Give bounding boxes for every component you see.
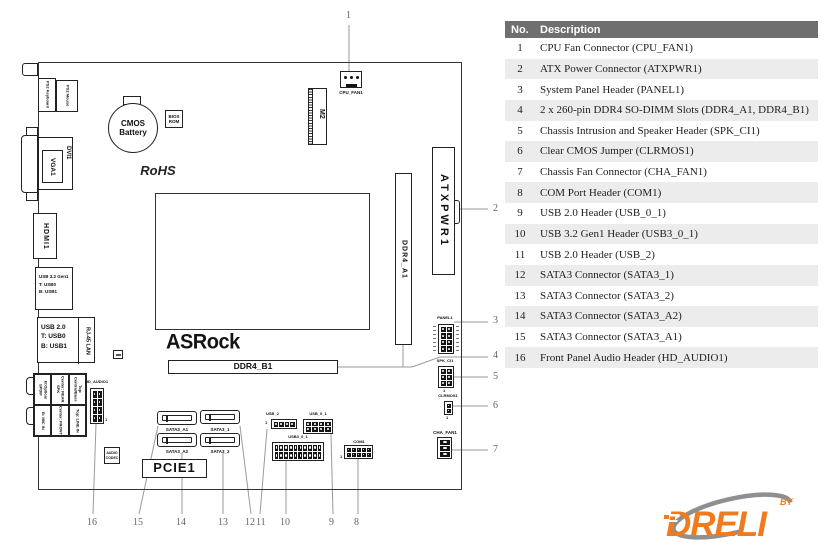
sata3-1-connector — [200, 410, 240, 424]
legend-row: 15SATA3 Connector (SATA3_A1) — [505, 327, 818, 348]
usb20-rj45-block: USB 2.0 T: USB0 B: USB1 RJ-45 LAN — [37, 317, 95, 363]
usb32-label: USB 3.2 Gen1 — [39, 274, 72, 279]
panel1-side-marks — [433, 326, 436, 352]
dreli-wordmark: DRELI — [666, 505, 768, 544]
usb-2-header — [271, 419, 297, 429]
row-desc: Clear CMOS Jumper (CLRMOS1) — [535, 145, 694, 157]
row-no: 16 — [505, 352, 535, 364]
callout-1: 1 — [346, 10, 351, 21]
pcie1-slot: PCIE1 — [142, 459, 207, 478]
row-no: 8 — [505, 187, 535, 199]
spk-ci1-label: SPK_CI1 — [432, 359, 458, 364]
asrock-logo: ASRock — [166, 330, 240, 354]
dreli-by-text: BY — [780, 497, 793, 507]
usb32-ports: USB 3.2 Gen1 T: USB0 B: USB1 — [35, 267, 73, 310]
hdmi-port: HDMI1 — [33, 213, 57, 259]
audio-jack-label: Top: LINE IN — [75, 409, 80, 433]
ps2-mouse-port: PS2 Mouse — [56, 80, 78, 112]
audio-jack-cell: Top: Central/Bass — [69, 374, 86, 405]
com1-pin1: 1 — [340, 455, 342, 460]
cha-fan1-label: CHA_FAN1 — [430, 430, 460, 435]
legend-row: 12SATA3 Connector (SATA3_1) — [505, 265, 818, 286]
rj45-label: RJ-45 LAN — [84, 327, 90, 355]
row-no: 4 — [505, 104, 535, 116]
usb20-ports: USB 2.0 T: USB0 B: USB1 — [38, 318, 78, 364]
audio-codec-label: AUDIO CODEC — [106, 451, 119, 459]
com1-header — [344, 445, 373, 459]
legend-row: 16Front Panel Audio Header (HD_AUDIO1) — [505, 347, 818, 368]
rj45-port: RJ-45 LAN — [78, 318, 96, 364]
callout-3: 3 — [493, 315, 498, 326]
hd-audio1-label: HD_AUDIO1 — [85, 380, 123, 385]
ps2-keyboard-port: PS2 Keyboard — [38, 78, 56, 112]
rohs-mark: RoHS — [133, 163, 183, 178]
row-no: 3 — [505, 84, 535, 96]
atxpwr1-label: ATXPWR1 — [437, 174, 450, 248]
row-desc: 2 x 260-pin DDR4 SO-DIMM Slots (DDR4_A1,… — [535, 104, 809, 116]
legend-row: 6Clear CMOS Jumper (CLRMOS1) — [505, 141, 818, 162]
usb-0-1-header — [303, 419, 333, 434]
row-no: 7 — [505, 166, 535, 178]
callout-9: 9 — [329, 517, 334, 528]
usb-2-label: USB_2 — [266, 412, 296, 417]
usb-2-pin1: 1 — [265, 421, 267, 426]
callout-12: 12 — [245, 517, 255, 528]
audio-jack-cell: Center: FRONT — [51, 405, 68, 436]
rear-audio-jacks: B:Optical SPDIF Center: REAR SPK Top: Ce… — [33, 373, 87, 437]
usb32-top-label: T: USB0 — [39, 282, 72, 287]
clrmos1-pin1: 1 — [446, 416, 448, 421]
atxpwr1-connector: ATXPWR1 — [432, 147, 455, 275]
audio-jack-label: Center: REAR SPK — [55, 375, 64, 404]
ddr4-a1-slot: DDR4_A1 — [395, 173, 412, 345]
audio-jack-label: B:Optical SPDIF — [38, 375, 47, 404]
row-desc: ATX Power Connector (ATXPWR1) — [535, 63, 702, 75]
legend-row: 8COM Port Header (COM1) — [505, 182, 818, 203]
row-no: 10 — [505, 228, 535, 240]
row-no: 11 — [505, 249, 535, 261]
row-desc: Front Panel Audio Header (HD_AUDIO1) — [535, 352, 728, 364]
audio-jack-cell: B: MIC IN — [34, 405, 51, 436]
audio-jack-label: Center: FRONT — [58, 406, 63, 435]
row-desc: CPU Fan Connector (CPU_FAN1) — [535, 42, 693, 54]
legend-row: 42 x 260-pin DDR4 SO-DIMM Slots (DDR4_A1… — [505, 100, 818, 121]
callout-8: 8 — [354, 517, 359, 528]
legend-row: 2ATX Power Connector (ATXPWR1) — [505, 59, 818, 80]
usb3-0-1-header — [272, 442, 324, 461]
audio-jack-cell: Center: REAR SPK — [51, 374, 68, 405]
ddr4-a1-label: DDR4_A1 — [399, 240, 407, 279]
sata3-1-label: SATA3_1 — [200, 427, 240, 432]
sata3-a1-connector — [157, 411, 197, 425]
sata3-2-connector — [200, 433, 240, 447]
row-desc: USB 3.2 Gen1 Header (USB3_0_1) — [535, 228, 698, 240]
dvi-label: DVI1 — [64, 146, 71, 159]
ps2-mouse-label: PS2 Mouse — [65, 85, 70, 106]
legend-row: 7Chassis Fan Connector (CHA_FAN1) — [505, 162, 818, 183]
callout-10: 10 — [280, 517, 290, 528]
callout-6: 6 — [493, 400, 498, 411]
audio-jack-cell: B:Optical SPDIF — [34, 374, 51, 405]
m2-label: M2 — [317, 109, 325, 119]
row-no: 5 — [505, 125, 535, 137]
legend-row: 11USB 2.0 Header (USB_2) — [505, 244, 818, 265]
callout-15: 15 — [133, 517, 143, 528]
legend-row: 13SATA3 Connector (SATA3_2) — [505, 286, 818, 307]
rear-port-stub — [22, 63, 38, 76]
audio-codec-chip: AUDIO CODEC — [104, 447, 120, 464]
callout-14: 14 — [176, 517, 186, 528]
usb20-label: USB 2.0 — [41, 324, 78, 331]
sata3-a2-label: SATA3_A2 — [157, 449, 197, 454]
audio-jack-label: B: MIC IN — [40, 412, 45, 430]
usb20-top-label: T: USB0 — [41, 333, 78, 340]
row-desc: SATA3 Connector (SATA3_2) — [535, 290, 674, 302]
panel1-header — [438, 324, 454, 354]
ddr4-b1-label: DDR4_B1 — [234, 362, 273, 372]
clrmos1-jumper — [444, 401, 453, 415]
usb20-bottom-label: B: USB1 — [41, 343, 78, 350]
callout-5: 5 — [493, 371, 498, 382]
sata3-2-label: SATA3_2 — [200, 449, 240, 454]
row-no: 15 — [505, 331, 535, 343]
legend-header-no: No. — [505, 24, 540, 36]
row-no: 2 — [505, 63, 535, 75]
usb3-0-1-label: USB3_0_1 — [280, 435, 316, 440]
legend-table: No. Description 1CPU Fan Connector (CPU_… — [505, 21, 818, 368]
pcie1-label: PCIE1 — [153, 461, 196, 476]
legend-row: 1CPU Fan Connector (CPU_FAN1) — [505, 38, 818, 59]
m2-slot-pins — [309, 89, 313, 144]
spk-ci1-header — [438, 366, 454, 388]
row-desc: SATA3 Connector (SATA3_1) — [535, 269, 674, 281]
row-desc: USB 2.0 Header (USB_2) — [535, 249, 655, 261]
row-no: 9 — [505, 207, 535, 219]
cha-fan1-connector — [437, 437, 452, 459]
legend-row: 14SATA3 Connector (SATA3_A2) — [505, 306, 818, 327]
row-desc: System Panel Header (PANEL1) — [535, 84, 684, 96]
legend-row: 3System Panel Header (PANEL1) — [505, 79, 818, 100]
com1-label: COM1 — [347, 440, 371, 445]
panel1-side-marks — [456, 326, 459, 352]
audio-jack-cell: Top: LINE IN — [69, 405, 86, 436]
callout-2: 2 — [493, 203, 498, 214]
dreli-logo: DRELI BY — [656, 484, 804, 546]
panel1-label: PANEL1 — [432, 316, 458, 321]
row-no: 12 — [505, 269, 535, 281]
cmos-battery-label: CMOS Battery — [115, 119, 151, 137]
callout-16: 16 — [87, 517, 97, 528]
row-no: 13 — [505, 290, 535, 302]
vga-dsub-screw-bottom — [26, 192, 38, 201]
hdmi-label: HDMI1 — [41, 223, 49, 250]
legend-header: No. Description — [505, 21, 818, 38]
ddr4-b1-slot: DDR4_B1 — [168, 360, 338, 374]
ps2-keyboard-label: PS2 Keyboard — [45, 81, 50, 108]
cmos-battery: CMOS Battery — [108, 103, 158, 153]
audio-jack-label: Top: Central/Bass — [73, 375, 82, 404]
sata3-a1-label: SATA3_A1 — [157, 427, 197, 432]
bios-rom-label: BIOS ROM — [167, 114, 181, 124]
bios-rom-chip: BIOS ROM — [165, 110, 183, 128]
legend-rows: 1CPU Fan Connector (CPU_FAN1) 2ATX Power… — [505, 38, 818, 368]
hd-audio1-pin1: 1 — [105, 418, 107, 423]
usb32-bottom-label: B: USB1 — [39, 289, 72, 294]
m2-slot: M2 — [308, 88, 327, 145]
legend-row: 5Chassis Intrusion and Speaker Header (S… — [505, 121, 818, 142]
vga-dsub-body — [21, 135, 38, 193]
clrmos1-label: CLRMOS1 — [434, 394, 462, 399]
row-desc: COM Port Header (COM1) — [535, 187, 661, 199]
cpu-fan1-label: CPU_FAN1 — [336, 90, 366, 95]
row-no: 1 — [505, 42, 535, 54]
row-desc: SATA3 Connector (SATA3_A2) — [535, 310, 682, 322]
hd-audio1-header — [90, 388, 104, 424]
legend-header-description: Description — [540, 24, 601, 36]
callout-13: 13 — [218, 517, 228, 528]
row-desc: Chassis Fan Connector (CHA_FAN1) — [535, 166, 707, 178]
row-desc: Chassis Intrusion and Speaker Header (SP… — [535, 125, 760, 137]
callout-11: 11 — [256, 517, 266, 528]
cpu-fan1-connector — [340, 71, 362, 88]
vga-port: VGA1 — [42, 150, 63, 183]
small-component — [113, 350, 123, 359]
legend-row: 10USB 3.2 Gen1 Header (USB3_0_1) — [505, 224, 818, 245]
usb-0-1-label: USB_0_1 — [303, 412, 333, 417]
row-desc: SATA3 Connector (SATA3_A1) — [535, 331, 682, 343]
legend-row: 9USB 2.0 Header (USB_0_1) — [505, 203, 818, 224]
callout-4: 4 — [493, 350, 498, 361]
row-desc: USB 2.0 Header (USB_0_1) — [535, 207, 666, 219]
sata3-a2-connector — [157, 433, 197, 447]
atxpwr1-latch — [454, 200, 460, 224]
callout-7: 7 — [493, 444, 498, 455]
soc-area — [155, 193, 370, 330]
row-no: 14 — [505, 310, 535, 322]
row-no: 6 — [505, 145, 535, 157]
vga-label: VGA1 — [49, 158, 56, 176]
